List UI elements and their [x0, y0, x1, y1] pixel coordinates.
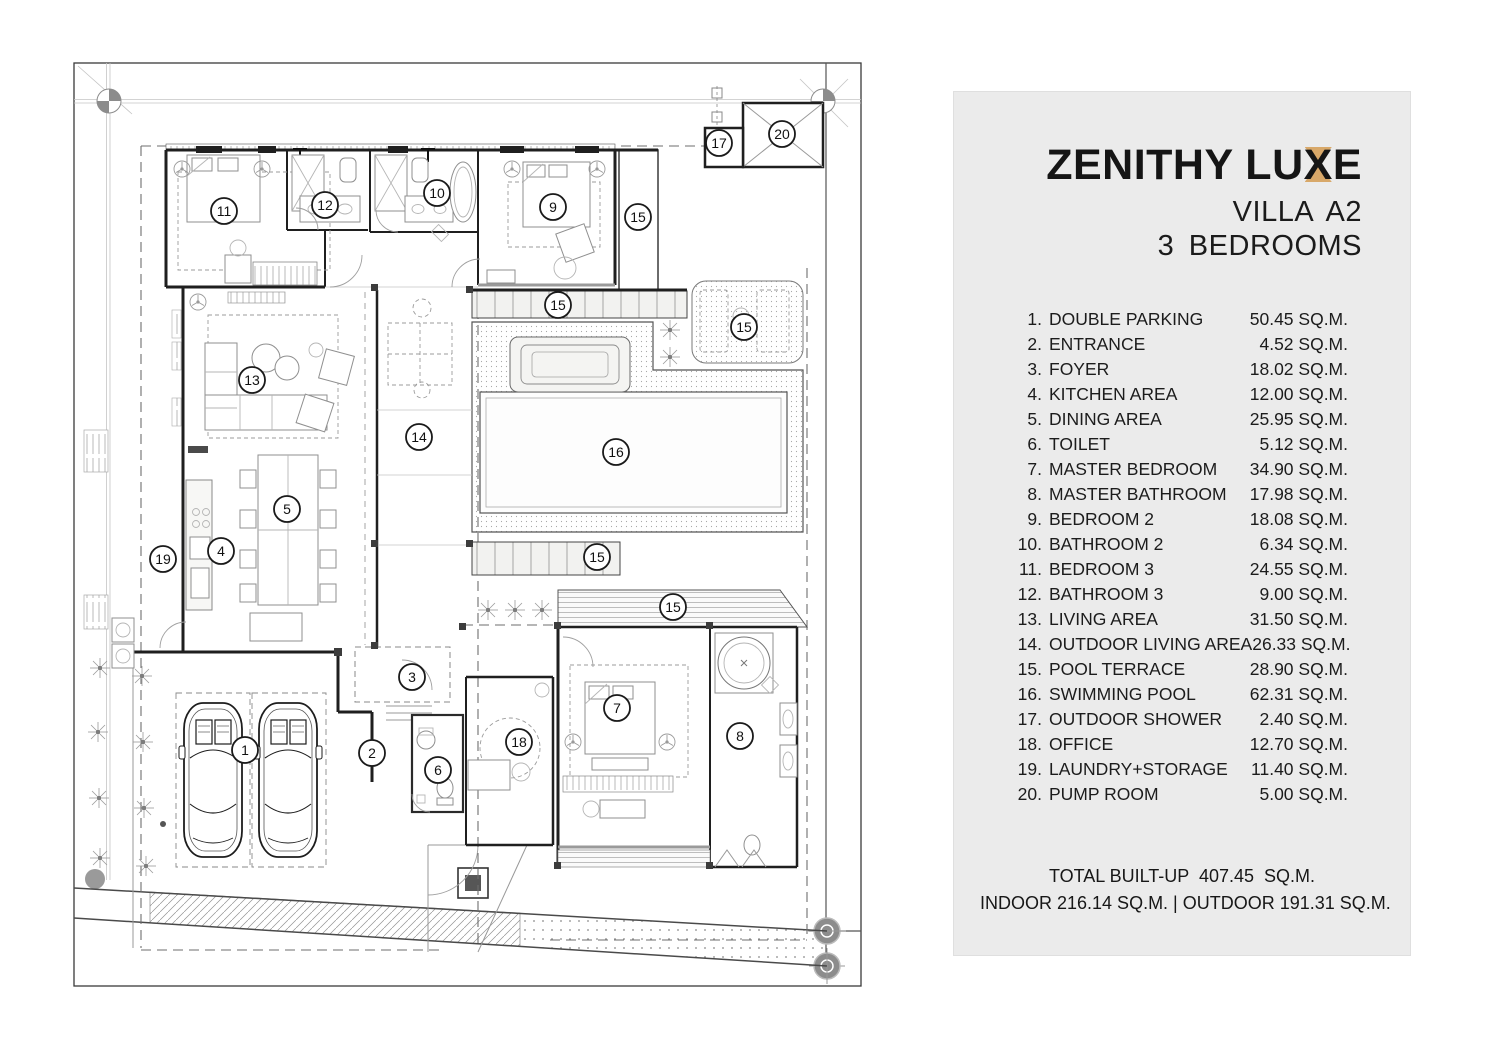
room-balloon-9: 9 — [540, 194, 566, 220]
legend-row-number: 11. — [1010, 559, 1042, 580]
legend-row-area: 5.00 SQ.M. — [1259, 784, 1348, 805]
svg-text:16: 16 — [608, 444, 624, 460]
svg-text:17: 17 — [711, 135, 727, 151]
floor-plan-svg: 111210915172015151314165419151537126188 — [0, 0, 940, 1060]
legend-row-name: LAUNDRY+STORAGE — [1042, 759, 1251, 780]
svg-text:7: 7 — [613, 700, 621, 716]
room-balloon-4: 4 — [208, 538, 234, 564]
room-balloon-13: 13 — [239, 367, 265, 393]
legend-row-area: 18.08 SQ.M. — [1250, 509, 1348, 530]
legend-row-name: BEDROOM 2 — [1042, 509, 1250, 530]
legend-row-area: 25.95 SQ.M. — [1250, 409, 1348, 430]
svg-text:1: 1 — [241, 742, 249, 758]
legend-row-13: 13.LIVING AREA31.50 SQ.M. — [1010, 607, 1348, 632]
living-area-furniture — [188, 292, 354, 453]
svg-text:15: 15 — [550, 297, 566, 313]
laundry-fixtures — [84, 310, 181, 668]
legend-row-number: 4. — [1010, 384, 1042, 405]
svg-text:8: 8 — [736, 728, 744, 744]
legend-row-1: 1.DOUBLE PARKING50.45 SQ.M. — [1010, 307, 1348, 332]
legend-row-number: 3. — [1010, 359, 1042, 380]
legend-row-area: 5.12 SQ.M. — [1259, 434, 1348, 455]
legend-row-name: TOILET — [1042, 434, 1259, 455]
master-suite — [558, 627, 797, 867]
spa — [510, 337, 630, 392]
legend-row-number: 18. — [1010, 734, 1042, 755]
legend-row-area: 31.50 SQ.M. — [1250, 609, 1348, 630]
brand-right: E — [1333, 141, 1362, 189]
svg-text:3: 3 — [408, 669, 416, 685]
legend-row-area: 18.02 SQ.M. — [1250, 359, 1348, 380]
legend-row-name: FOYER — [1042, 359, 1250, 380]
totals-block: TOTAL BUILT-UP 407.45 SQ.M. INDOOR 216.1… — [954, 863, 1410, 917]
legend-row-number: 6. — [1010, 434, 1042, 455]
legend-row-area: 9.00 SQ.M. — [1259, 584, 1348, 605]
info-panel: ZENITHY LUXE VILLA A2 3 BEDROOMS 1.DOUBL… — [953, 91, 1411, 956]
legend-row-3: 3.FOYER18.02 SQ.M. — [1010, 357, 1348, 382]
legend-row-14: 14.OUTDOOR LIVING AREA26.33 SQ.M. — [1010, 632, 1348, 657]
room-balloon-1: 1 — [232, 737, 258, 763]
car — [179, 703, 247, 857]
outdoor-living-furniture — [377, 299, 472, 545]
legend-row-area: 62.31 SQ.M. — [1250, 684, 1348, 705]
svg-text:20: 20 — [774, 126, 790, 142]
legend-row-name: OFFICE — [1042, 734, 1250, 755]
legend-row-name: BATHROOM 3 — [1042, 584, 1259, 605]
legend-row-area: 6.34 SQ.M. — [1259, 534, 1348, 555]
legend-row-11: 11.BEDROOM 324.55 SQ.M. — [1010, 557, 1348, 582]
svg-text:15: 15 — [589, 549, 605, 565]
svg-text:10: 10 — [429, 185, 445, 201]
svg-text:15: 15 — [630, 209, 646, 225]
legend-row-5: 5.DINING AREA25.95 SQ.M. — [1010, 407, 1348, 432]
legend-row-number: 8. — [1010, 484, 1042, 505]
legend-row-name: BEDROOM 3 — [1042, 559, 1250, 580]
room-balloon-16: 16 — [603, 439, 629, 465]
svg-text:19: 19 — [155, 551, 171, 567]
legend-row-10: 10.BATHROOM 26.34 SQ.M. — [1010, 532, 1348, 557]
legend-row-area: 34.90 SQ.M. — [1250, 459, 1348, 480]
legend-row-area: 17.98 SQ.M. — [1250, 484, 1348, 505]
legend-row-area: 11.40 SQ.M. — [1251, 759, 1348, 780]
legend-row-17: 17.OUTDOOR SHOWER2.40 SQ.M. — [1010, 707, 1348, 732]
total-built-up: TOTAL BUILT-UP 407.45 SQ.M. — [980, 863, 1384, 890]
legend-row-area: 4.52 SQ.M. — [1259, 334, 1348, 355]
legend-row-number: 7. — [1010, 459, 1042, 480]
room-balloon-5: 5 — [274, 496, 300, 522]
room-balloon-15: 15 — [584, 544, 610, 570]
room-balloon-15: 15 — [660, 594, 686, 620]
legend-row-name: ENTRANCE — [1042, 334, 1259, 355]
room-balloon-11: 11 — [211, 198, 237, 224]
legend-row-name: OUTDOOR LIVING AREA — [1042, 634, 1252, 655]
legend-row-6: 6.TOILET5.12 SQ.M. — [1010, 432, 1348, 457]
svg-text:13: 13 — [244, 372, 260, 388]
room-balloon-3: 3 — [399, 664, 425, 690]
legend-row-number: 12. — [1010, 584, 1042, 605]
road — [74, 845, 827, 966]
brand-accent-letter: X — [1304, 141, 1333, 189]
legend-row-19: 19.LAUNDRY+STORAGE11.40 SQ.M. — [1010, 757, 1348, 782]
legend-row-number: 2. — [1010, 334, 1042, 355]
svg-text:12: 12 — [317, 197, 333, 213]
legend-row-name: LIVING AREA — [1042, 609, 1250, 630]
room-balloon-10: 10 — [424, 180, 450, 206]
brand-accent-x: X — [1304, 144, 1333, 187]
svg-text:11: 11 — [217, 203, 232, 219]
room-balloon-19: 19 — [150, 546, 176, 572]
legend-row-name: MASTER BATHROOM — [1042, 484, 1250, 505]
dining-furniture — [240, 455, 336, 605]
room-legend-list: 1.DOUBLE PARKING50.45 SQ.M.2.ENTRANCE4.5… — [954, 307, 1410, 807]
legend-row-number: 20. — [1010, 784, 1042, 805]
legend-row-7: 7.MASTER BEDROOM34.90 SQ.M. — [1010, 457, 1348, 482]
room-balloon-2: 2 — [359, 740, 385, 766]
legend-row-area: 12.70 SQ.M. — [1250, 734, 1348, 755]
brand-left: ZENITHY LU — [1046, 141, 1303, 189]
legend-row-name: SWIMMING POOL — [1042, 684, 1250, 705]
room-balloon-20: 20 — [769, 121, 795, 147]
page: { "panel": { "brand": { "left": "ZENITHY… — [0, 0, 1500, 1060]
svg-text:14: 14 — [411, 429, 427, 445]
survey-marker — [97, 89, 121, 113]
legend-row-name: PUMP ROOM — [1042, 784, 1259, 805]
room-balloon-18: 18 — [506, 729, 532, 755]
room-balloon-17: 17 — [706, 130, 732, 156]
legend-row-9: 9.BEDROOM 218.08 SQ.M. — [1010, 507, 1348, 532]
pool-water — [480, 392, 787, 513]
gate-utility-box-inner — [465, 875, 481, 891]
room-balloon-14: 14 — [406, 424, 432, 450]
legend-row-name: DOUBLE PARKING — [1042, 309, 1250, 330]
legend-row-16: 16.SWIMMING POOL62.31 SQ.M. — [1010, 682, 1348, 707]
legend-row-number: 9. — [1010, 509, 1042, 530]
legend-row-area: 24.55 SQ.M. — [1250, 559, 1348, 580]
svg-text:6: 6 — [434, 762, 442, 778]
legend-row-number: 16. — [1010, 684, 1042, 705]
legend-row-area: 26.33 SQ.M. — [1252, 634, 1350, 655]
legend-row-name: KITCHEN AREA — [1042, 384, 1250, 405]
svg-text:5: 5 — [283, 501, 291, 517]
legend-row-area: 12.00 SQ.M. — [1250, 384, 1348, 405]
survey-marker — [85, 869, 105, 889]
legend-row-name: BATHROOM 2 — [1042, 534, 1259, 555]
legend-row-number: 5. — [1010, 409, 1042, 430]
floor-plan: 111210915172015151314165419151537126188 — [0, 0, 940, 1060]
room-balloon-15: 15 — [625, 204, 651, 230]
legend-row-2: 2.ENTRANCE4.52 SQ.M. — [1010, 332, 1348, 357]
indoor-outdoor: INDOOR 216.14 SQ.M. | OUTDOOR 191.31 SQ.… — [980, 890, 1384, 917]
parking — [160, 693, 326, 867]
brand-logo: ZENITHY LUXE — [954, 144, 1410, 187]
legend-row-name: DINING AREA — [1042, 409, 1250, 430]
svg-text:15: 15 — [736, 319, 752, 335]
legend-row-12: 12.BATHROOM 39.00 SQ.M. — [1010, 582, 1348, 607]
room-balloon-7: 7 — [604, 695, 630, 721]
room-balloon-12: 12 — [312, 192, 338, 218]
legend-row-name: POOL TERRACE — [1042, 659, 1250, 680]
legend-row-number: 10. — [1010, 534, 1042, 555]
office-room — [466, 677, 553, 845]
legend-row-name: OUTDOOR SHOWER — [1042, 709, 1259, 730]
svg-text:18: 18 — [511, 734, 527, 750]
legend-row-number: 14. — [1010, 634, 1042, 655]
villa-title: VILLA A2 — [954, 195, 1410, 229]
legend-row-number: 15. — [1010, 659, 1042, 680]
legend-row-number: 19. — [1010, 759, 1042, 780]
legend-row-number: 17. — [1010, 709, 1042, 730]
car — [254, 703, 322, 857]
room-balloon-15: 15 — [545, 292, 571, 318]
room-balloon-6: 6 — [425, 757, 451, 783]
legend-row-area: 28.90 SQ.M. — [1250, 659, 1348, 680]
svg-text:4: 4 — [217, 543, 225, 559]
bedrooms-subtitle: 3 BEDROOMS — [954, 229, 1410, 263]
svg-text:2: 2 — [368, 745, 376, 761]
legend-row-area: 2.40 SQ.M. — [1259, 709, 1348, 730]
svg-text:9: 9 — [549, 199, 557, 215]
legend-row-number: 1. — [1010, 309, 1042, 330]
svg-text:15: 15 — [665, 599, 681, 615]
room-balloon-15: 15 — [731, 314, 757, 340]
legend-row-18: 18.OFFICE12.70 SQ.M. — [1010, 732, 1348, 757]
legend-row-20: 20.PUMP ROOM5.00 SQ.M. — [1010, 782, 1348, 807]
legend-row-15: 15.POOL TERRACE28.90 SQ.M. — [1010, 657, 1348, 682]
legend-row-area: 50.45 SQ.M. — [1250, 309, 1348, 330]
legend-row-number: 13. — [1010, 609, 1042, 630]
legend-row-name: MASTER BEDROOM — [1042, 459, 1250, 480]
legend-row-4: 4.KITCHEN AREA12.00 SQ.M. — [1010, 382, 1348, 407]
room-balloon-8: 8 — [727, 723, 753, 749]
legend-row-8: 8.MASTER BATHROOM17.98 SQ.M. — [1010, 482, 1348, 507]
